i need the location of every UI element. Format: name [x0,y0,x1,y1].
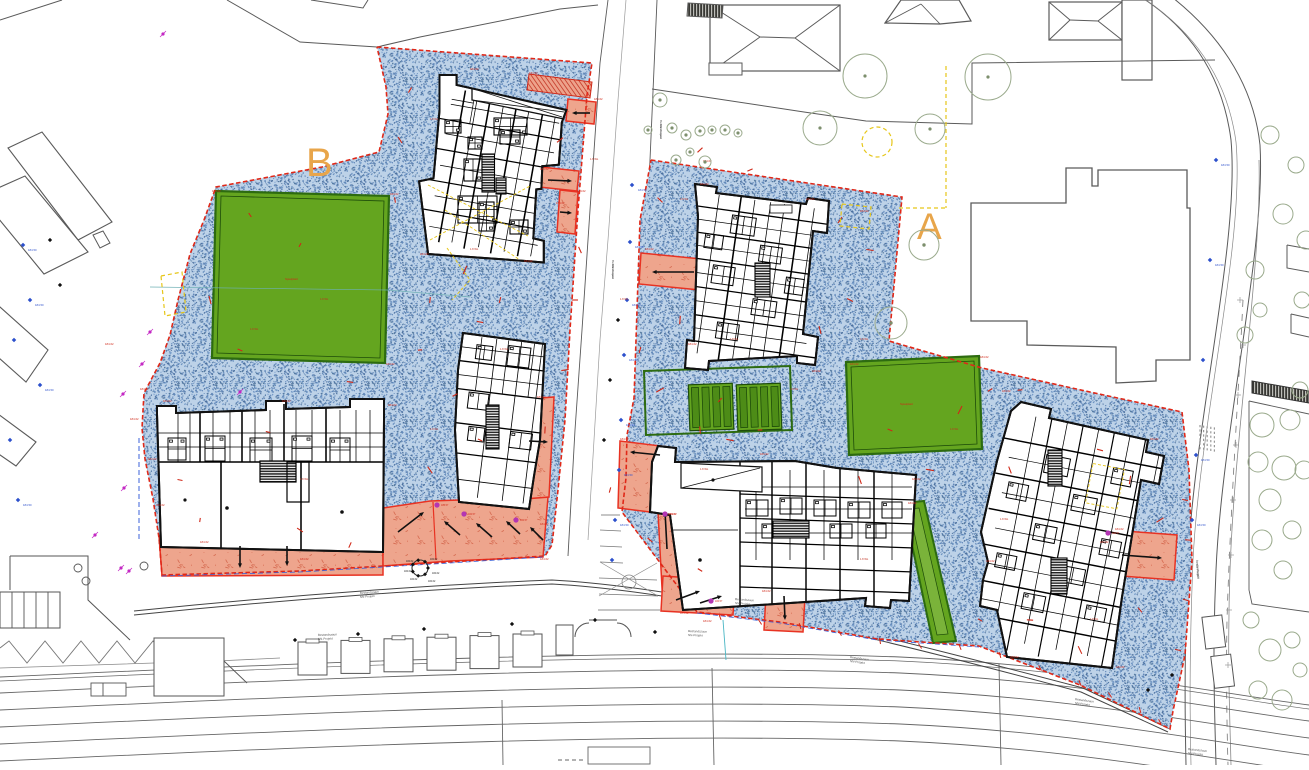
svg-text:184.62: 184.62 [668,512,677,516]
svg-text:184.62: 184.62 [1002,389,1011,393]
svg-text:184.50: 184.50 [635,245,644,249]
svg-text:184.62: 184.62 [529,71,538,75]
svg-text:184.50: 184.50 [28,248,37,252]
svg-text:NN-Projekt: NN-Projekt [318,636,333,641]
svg-text:184.50: 184.50 [626,423,635,427]
svg-text:1.8 Wo: 1.8 Wo [730,337,739,341]
svg-text:184.62: 184.62 [680,611,689,615]
svg-text:1.8 Wo: 1.8 Wo [1000,517,1009,521]
svg-text:184.50: 184.50 [620,523,629,527]
svg-text:1.8 Wo: 1.8 Wo [320,297,329,301]
svg-text:184.62: 184.62 [410,578,418,581]
svg-text:1.8 Wo: 1.8 Wo [680,197,689,201]
svg-text:184.62: 184.62 [577,189,586,193]
svg-text:184.62: 184.62 [812,369,821,373]
svg-text:184.62: 184.62 [875,637,884,641]
svg-text:184.50: 184.50 [1197,523,1206,527]
svg-text:184.62: 184.62 [1010,655,1019,659]
svg-text:184.50: 184.50 [629,358,638,362]
svg-text:184.62: 184.62 [594,97,603,101]
svg-text:184.50: 184.50 [1221,163,1230,167]
svg-text:184.62: 184.62 [540,167,549,171]
svg-text:184.50: 184.50 [1215,263,1224,267]
svg-text:184.50: 184.50 [624,473,633,477]
svg-text:1.8 Wo: 1.8 Wo [250,327,259,331]
svg-text:184.62: 184.62 [428,580,436,583]
svg-text:184.62: 184.62 [282,399,291,403]
svg-text:1.8 Wo: 1.8 Wo [430,427,439,431]
svg-text:B: B [306,141,333,185]
svg-text:1.8 Wo: 1.8 Wo [620,297,629,301]
svg-text:184.62: 184.62 [700,182,709,186]
svg-text:184.62: 184.62 [105,342,114,346]
svg-text:Spielplatz: Spielplatz [285,277,299,281]
svg-text:184.57: 184.57 [715,600,723,603]
svg-text:1.8 Wo: 1.8 Wo [500,347,509,351]
svg-text:184.50: 184.50 [638,188,647,192]
svg-text:184.62: 184.62 [703,619,712,623]
svg-text:184.62: 184.62 [860,209,869,213]
svg-text:184.62: 184.62 [645,247,654,251]
svg-text:184.62: 184.62 [620,437,629,441]
svg-text:184.62: 184.62 [212,189,221,193]
svg-text:NN-Projekt: NN-Projekt [688,633,703,638]
svg-text:184.62: 184.62 [432,572,440,575]
svg-text:1.8 Wo: 1.8 Wo [790,387,799,391]
svg-text:184.62: 184.62 [406,560,414,563]
svg-text:NN-Projekt: NN-Projekt [611,264,615,279]
svg-text:1.8 Wo: 1.8 Wo [1090,617,1099,621]
svg-text:184.62: 184.62 [148,457,157,461]
svg-text:1.8 Wo: 1.8 Wo [470,247,479,251]
svg-text:184.62: 184.62 [986,559,995,563]
svg-text:184.62: 184.62 [388,403,397,407]
svg-text:184.62: 184.62 [1116,665,1125,669]
svg-text:184.62: 184.62 [300,557,309,561]
svg-text:184.62: 184.62 [688,342,697,346]
svg-text:Spielplatz: Spielplatz [900,402,914,406]
svg-text:184.62: 184.62 [386,362,395,366]
svg-text:184.62: 184.62 [762,589,771,593]
svg-text:NN-Projekt: NN-Projekt [659,124,663,139]
svg-text:184.62: 184.62 [540,557,549,561]
svg-text:1.8 Wo: 1.8 Wo [430,117,439,121]
svg-text:184.62: 184.62 [200,540,209,544]
svg-text:184.62: 184.62 [537,395,546,399]
svg-text:184.62: 184.62 [430,558,438,561]
svg-text:184.62: 184.62 [850,362,859,366]
svg-text:1.8 Wo: 1.8 Wo [860,337,869,341]
svg-text:184.57: 184.57 [520,519,528,522]
svg-text:184.62: 184.62 [163,399,172,403]
svg-text:184.62: 184.62 [912,477,921,481]
svg-text:184.62: 184.62 [130,417,139,421]
svg-text:1.8 Wo: 1.8 Wo [860,557,869,561]
svg-text:184.62: 184.62 [1150,437,1159,441]
svg-text:184.62: 184.62 [806,197,815,201]
svg-text:184.62: 184.62 [1115,527,1124,531]
svg-text:184.62: 184.62 [140,387,149,391]
svg-text:184.50: 184.50 [1201,458,1210,462]
svg-text:184.50: 184.50 [35,303,44,307]
svg-text:184.57: 184.57 [441,504,449,507]
svg-text:184.62: 184.62 [908,501,917,505]
svg-text:184.62: 184.62 [420,252,429,256]
svg-text:184.57: 184.57 [1112,532,1120,535]
svg-text:184.62: 184.62 [524,259,533,263]
svg-text:1.8 Wo: 1.8 Wo [700,467,709,471]
svg-text:184.62: 184.62 [760,452,769,456]
svg-text:184.62: 184.62 [980,355,989,359]
svg-text:1.8 Wo: 1.8 Wo [950,427,959,431]
svg-text:184.62: 184.62 [556,201,565,205]
svg-text:1.8 Wo: 1.8 Wo [590,157,599,161]
svg-text:1.8 Wo: 1.8 Wo [300,477,309,481]
svg-text:184.62: 184.62 [404,570,412,573]
svg-text:184.62: 184.62 [470,67,479,71]
svg-text:184.57: 184.57 [468,513,476,516]
svg-text:184.50: 184.50 [632,303,641,307]
svg-text:184.50: 184.50 [23,503,32,507]
svg-text:184.62: 184.62 [540,522,549,526]
svg-text:184.50: 184.50 [45,388,54,392]
svg-text:184.62: 184.62 [390,192,399,196]
svg-text:184.62: 184.62 [156,503,165,507]
svg-text:184.62: 184.62 [1100,540,1109,544]
